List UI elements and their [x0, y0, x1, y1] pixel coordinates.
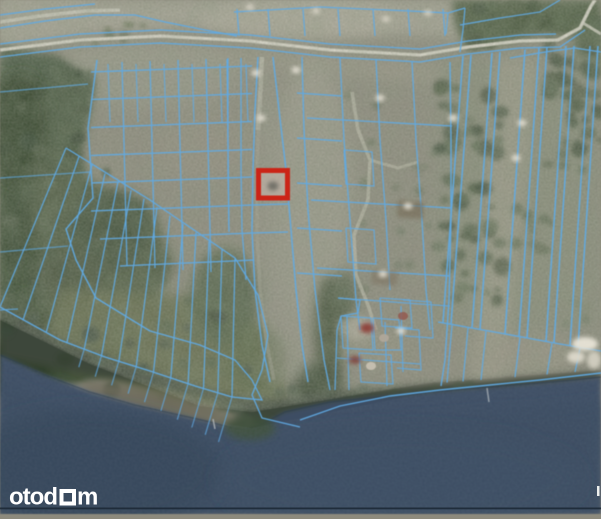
svg-text:otod: otod: [9, 484, 57, 511]
svg-text:m: m: [77, 484, 98, 511]
